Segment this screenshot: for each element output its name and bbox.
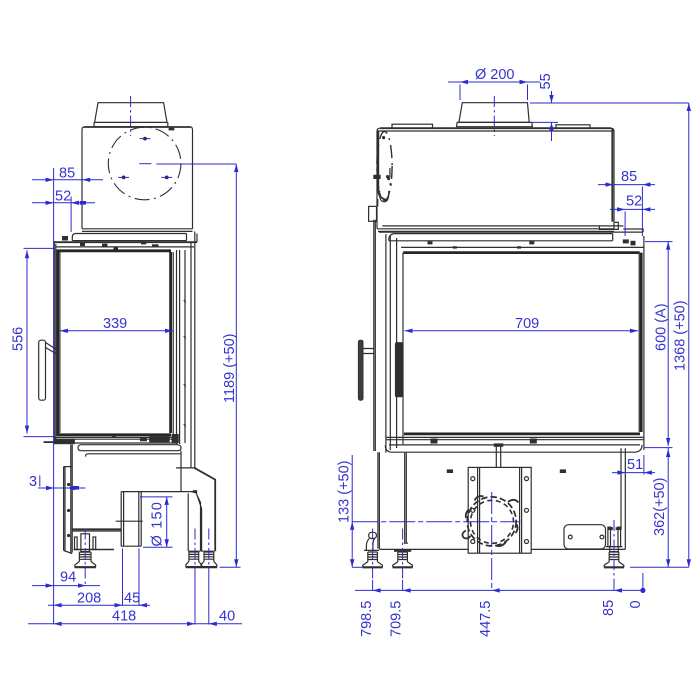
- svg-text:85: 85: [601, 600, 617, 616]
- svg-text:3: 3: [29, 474, 37, 490]
- svg-text:709: 709: [515, 316, 539, 332]
- svg-text:1189 (+50): 1189 (+50): [222, 334, 238, 403]
- svg-text:556: 556: [11, 327, 27, 351]
- svg-text:52: 52: [626, 194, 642, 210]
- svg-text:133 (+50): 133 (+50): [337, 461, 353, 523]
- svg-text:1368 (+50): 1368 (+50): [673, 300, 689, 371]
- svg-text:85: 85: [59, 166, 75, 182]
- svg-text:51: 51: [627, 457, 643, 473]
- svg-text:Ø 200: Ø 200: [475, 67, 515, 83]
- svg-text:798.5: 798.5: [359, 601, 375, 637]
- svg-text:94: 94: [60, 570, 76, 586]
- svg-text:709.5: 709.5: [389, 601, 405, 637]
- svg-text:55: 55: [538, 73, 554, 89]
- svg-text:362(+50): 362(+50): [652, 478, 668, 536]
- svg-text:418: 418: [112, 609, 136, 625]
- svg-text:208: 208: [77, 591, 101, 607]
- svg-text:Ø 150: Ø 150: [150, 501, 166, 547]
- svg-text:600 (A): 600 (A): [654, 303, 670, 351]
- svg-text:40: 40: [219, 609, 235, 625]
- svg-text:45: 45: [124, 591, 140, 607]
- svg-text:85: 85: [621, 169, 637, 185]
- svg-text:339: 339: [103, 316, 127, 332]
- svg-text:447.5: 447.5: [478, 601, 494, 637]
- svg-text:0: 0: [628, 600, 644, 608]
